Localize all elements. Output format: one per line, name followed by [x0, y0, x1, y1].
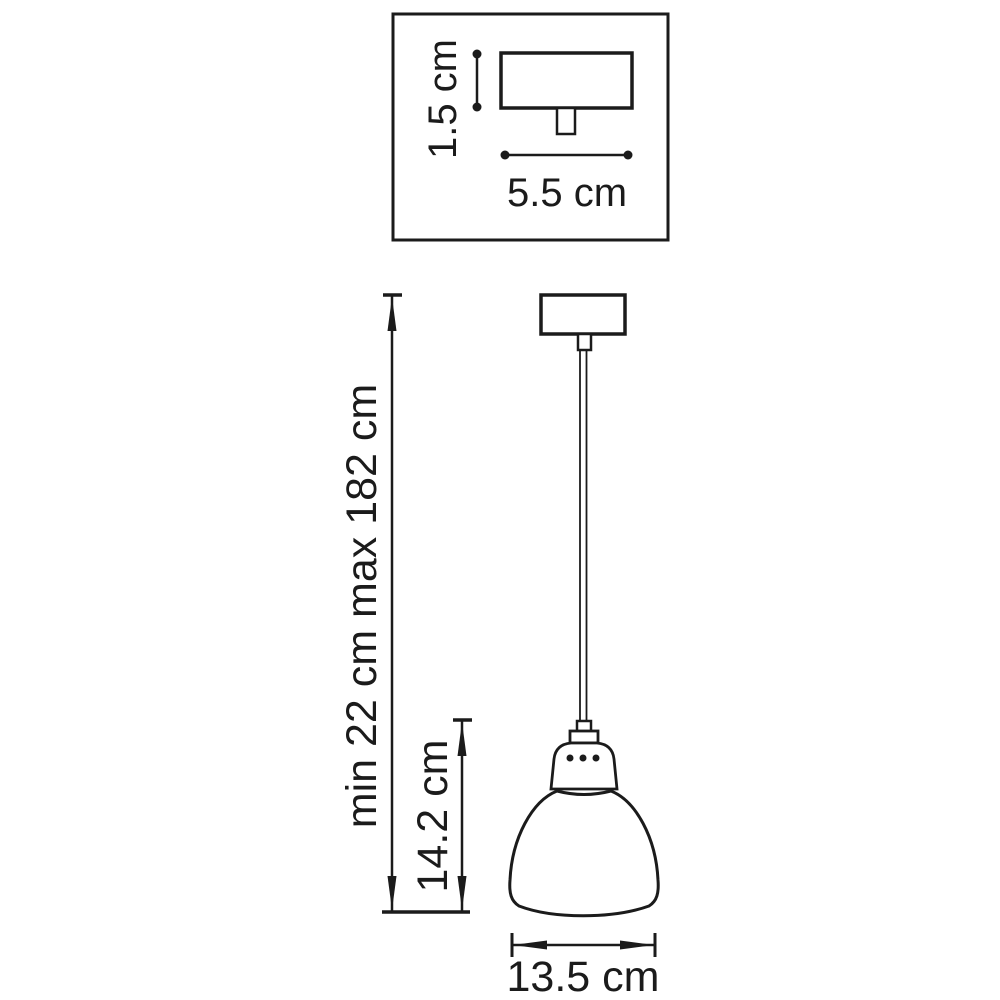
vent-dot — [593, 755, 600, 762]
socket-cup — [551, 743, 617, 789]
canopy-cord-outlet — [578, 334, 591, 350]
arrowhead-down — [388, 876, 397, 910]
canopy-detail-stem — [557, 108, 575, 134]
drawing-canvas: 1.5 cm 5.5 cm — [0, 0, 1000, 1000]
arrowhead-up — [388, 297, 397, 331]
lamp-shade — [510, 791, 658, 916]
dim-endpoint-dot — [624, 151, 633, 160]
arrowhead-left — [513, 941, 547, 950]
arrowhead-down — [458, 876, 467, 910]
socket-cap — [570, 731, 598, 743]
arrowhead-up — [458, 722, 467, 756]
canopy-height-dimension: 1.5 cm — [421, 39, 482, 159]
shade-diameter-label: 13.5 cm — [507, 953, 660, 1000]
canopy-detail-body — [501, 53, 632, 108]
shade-diameter-dimension: 13.5 cm — [507, 933, 660, 1000]
dim-endpoint-dot — [501, 151, 510, 160]
suspension-cord — [580, 350, 587, 722]
canopy-height-label: 1.5 cm — [421, 39, 465, 159]
shade-height-dimension: 14.2 cm — [409, 720, 472, 911]
ceiling-canopy — [541, 295, 625, 334]
pendant-lamp-dimension-drawing: 1.5 cm 5.5 cm — [0, 0, 1000, 1000]
vent-dot — [567, 755, 574, 762]
canopy-width-label: 5.5 cm — [507, 171, 627, 215]
pendant-lamp-elevation — [510, 295, 658, 916]
dim-endpoint-dot — [473, 50, 482, 59]
canopy-detail-inset: 1.5 cm 5.5 cm — [393, 14, 668, 240]
arrowhead-right — [620, 941, 654, 950]
shade-height-label: 14.2 cm — [409, 740, 457, 893]
canopy-width-dimension: 5.5 cm — [501, 151, 633, 216]
socket-body — [551, 743, 617, 789]
vent-dot — [580, 755, 587, 762]
dim-endpoint-dot — [473, 103, 482, 112]
suspension-height-label: min 22 cm max 182 cm — [338, 384, 386, 828]
